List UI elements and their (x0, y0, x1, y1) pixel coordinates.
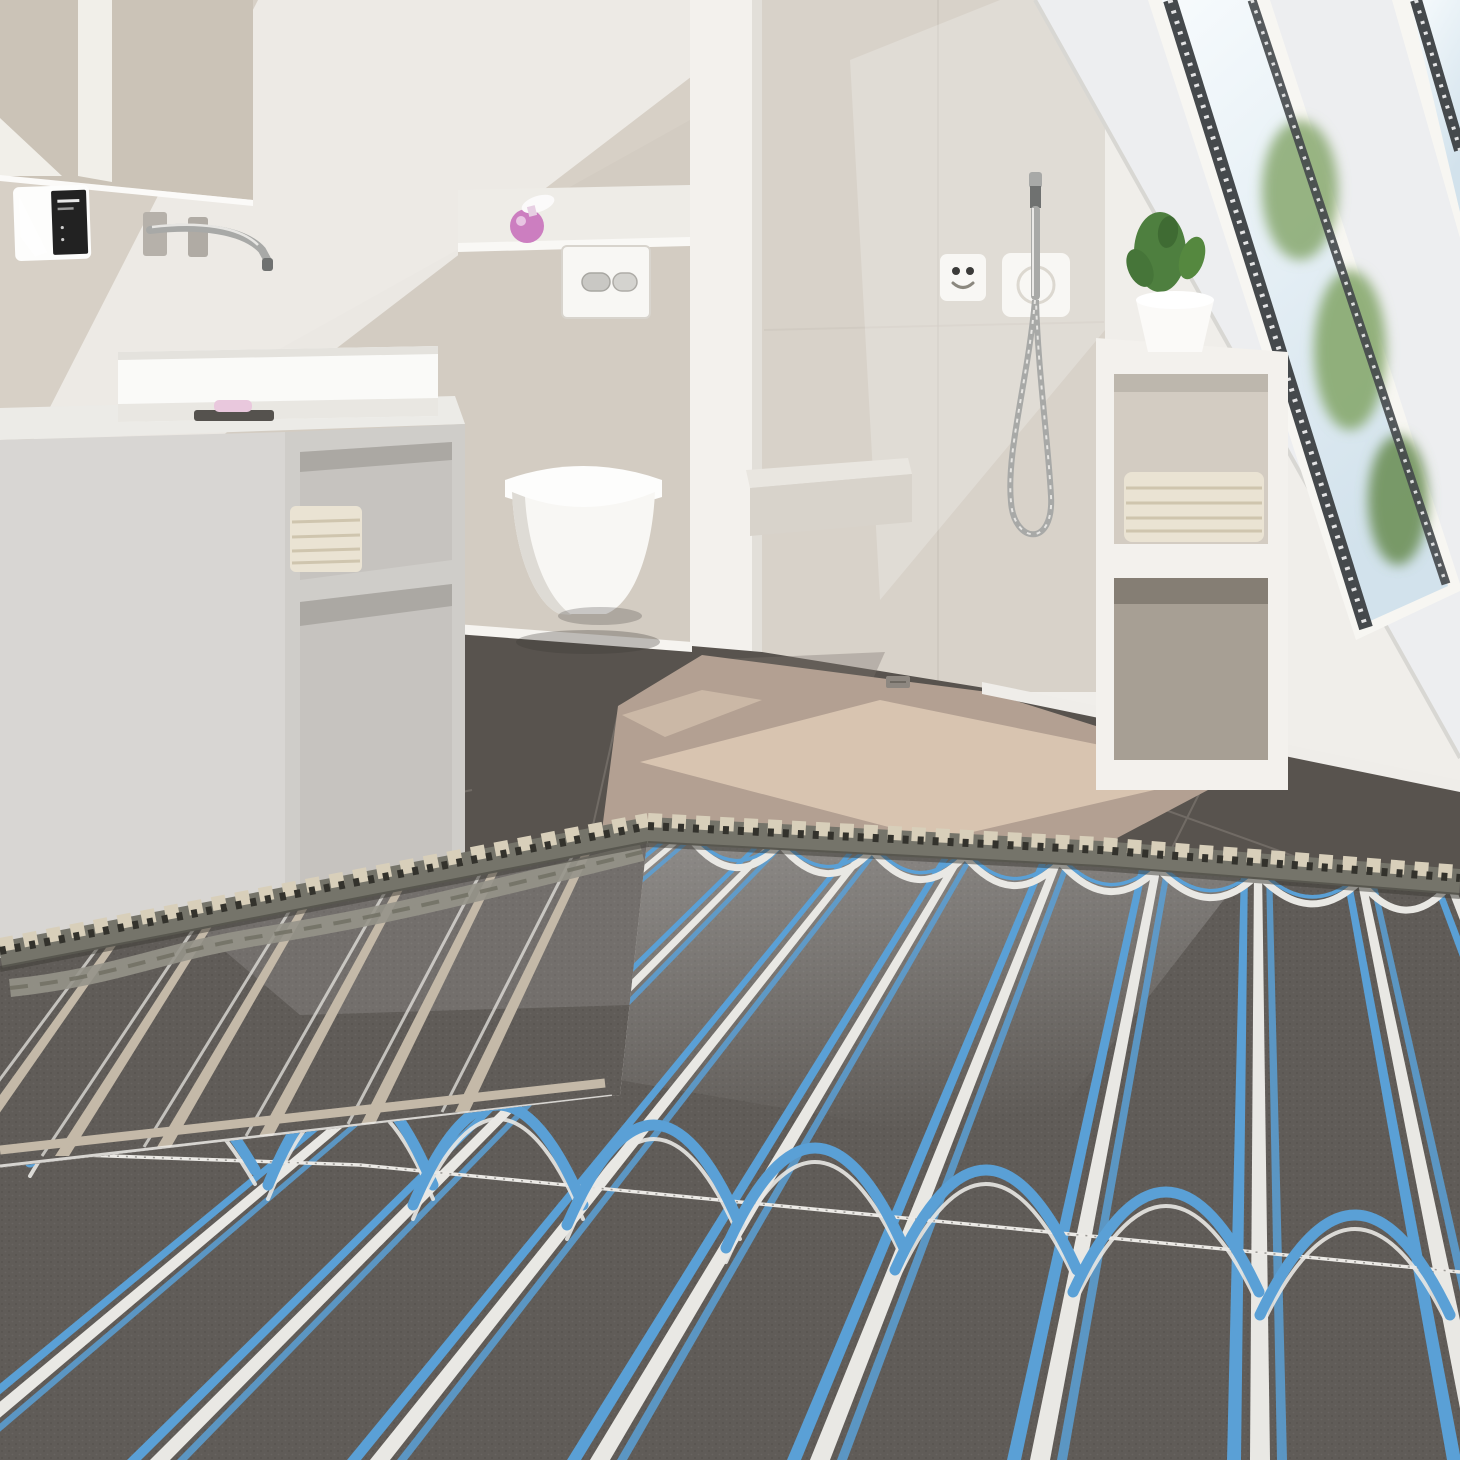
partition-pillar (690, 0, 762, 652)
washbasin (118, 346, 438, 422)
toilet-floor-shadow (516, 630, 660, 654)
niche-bottom-shadow (1114, 578, 1268, 604)
soap-bar (214, 400, 252, 412)
wall-thermostat (13, 185, 92, 262)
flush-button-large (582, 273, 610, 291)
shower-handle-grip (1030, 186, 1041, 208)
vanity-front (0, 432, 285, 950)
pillar-shade-edge (752, 0, 762, 652)
vanity-towel-stack (290, 506, 362, 572)
faucet-plate (188, 217, 208, 257)
bathroom-render (0, 0, 1460, 1460)
toilet-shadow (558, 607, 642, 625)
dispenser-body (510, 209, 544, 243)
control-knob (952, 267, 960, 275)
shelf-niche-bottom (1114, 578, 1268, 760)
mirror (0, 0, 253, 206)
vanity-cabinet (0, 346, 465, 950)
mirror-reflection-strip (78, 0, 112, 182)
flush-button-small (613, 273, 637, 291)
shower-holder (1029, 172, 1042, 188)
control-plate (940, 254, 986, 301)
pot-rim (1136, 291, 1214, 309)
underfloor-heating (0, 820, 1460, 1460)
faucet-plate (143, 212, 167, 256)
faucet-nozzle (262, 258, 273, 271)
bathroom-scene (0, 0, 1460, 1460)
toilet-flush-plate (562, 246, 650, 318)
niche-top-shadow (1114, 374, 1268, 392)
dispenser-highlight (516, 216, 526, 226)
shower-control-panel (940, 254, 986, 301)
control-knob (966, 267, 974, 275)
towel-stack (1124, 472, 1264, 542)
